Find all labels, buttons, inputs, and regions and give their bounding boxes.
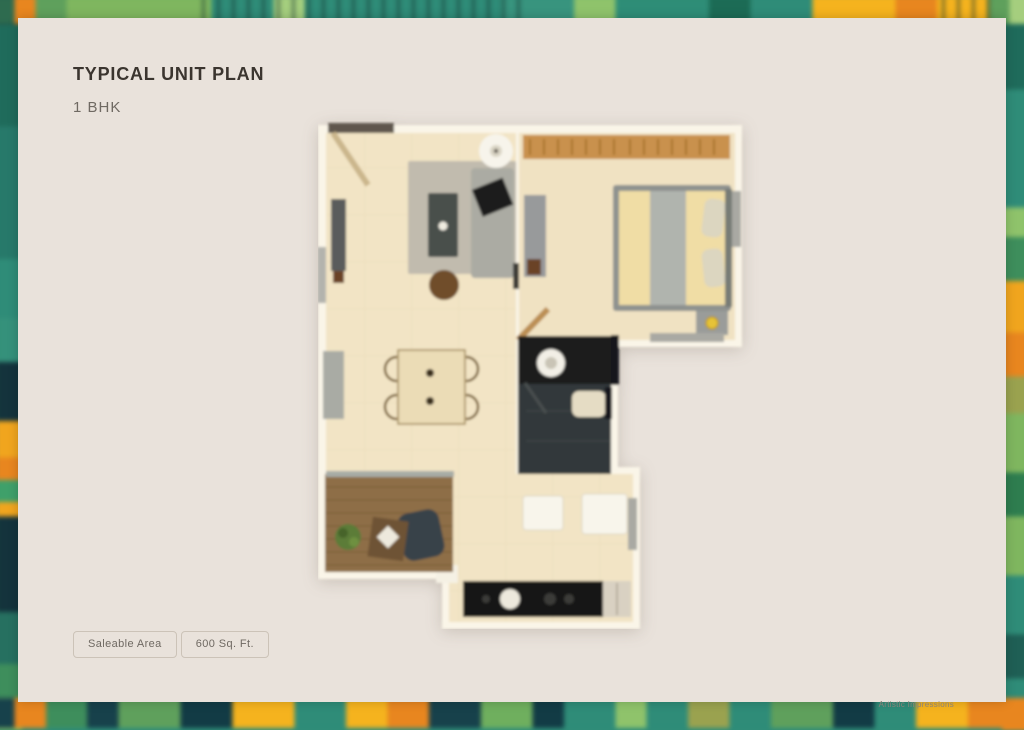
living-room xyxy=(318,123,521,479)
table-decor xyxy=(439,222,448,231)
balcony-door-track xyxy=(326,471,454,477)
credit-note: Artistic Impressions xyxy=(879,700,954,709)
blanket xyxy=(650,191,686,305)
area-value-badge: 600 Sq. Ft. xyxy=(181,631,269,658)
bathroom xyxy=(518,335,619,478)
area-label-badge: Saleable Area xyxy=(73,631,177,658)
bedroom-window xyxy=(732,191,741,247)
page-title: TYPICAL UNIT PLAN xyxy=(73,64,264,85)
living-window xyxy=(318,247,326,303)
appliance xyxy=(523,496,563,530)
toilet xyxy=(572,391,606,417)
pouf xyxy=(429,270,459,300)
kitchen xyxy=(436,474,637,622)
floor-plan-svg xyxy=(318,121,746,629)
floor-plan xyxy=(318,121,746,629)
area-info: Saleable Area 600 Sq. Ft. xyxy=(73,631,269,658)
kitchen-sink xyxy=(500,589,520,609)
stove-burner xyxy=(564,594,574,604)
balcony xyxy=(325,471,454,572)
bedroom xyxy=(518,133,741,342)
pillow xyxy=(701,248,726,288)
entry-lintel xyxy=(328,123,394,133)
wardrobe xyxy=(523,135,730,159)
kitchen-window xyxy=(628,498,637,550)
bedroom-window xyxy=(650,333,724,342)
stove-burner xyxy=(544,593,556,605)
dining-table xyxy=(398,350,465,424)
dining-bench xyxy=(323,351,344,419)
content-card: TYPICAL UNIT PLAN 1 BHK xyxy=(18,18,1006,702)
lamp xyxy=(706,317,718,329)
page-subtitle: 1 BHK xyxy=(73,99,121,116)
plant xyxy=(335,524,361,550)
appliance xyxy=(582,494,627,534)
tv-unit xyxy=(331,199,346,271)
